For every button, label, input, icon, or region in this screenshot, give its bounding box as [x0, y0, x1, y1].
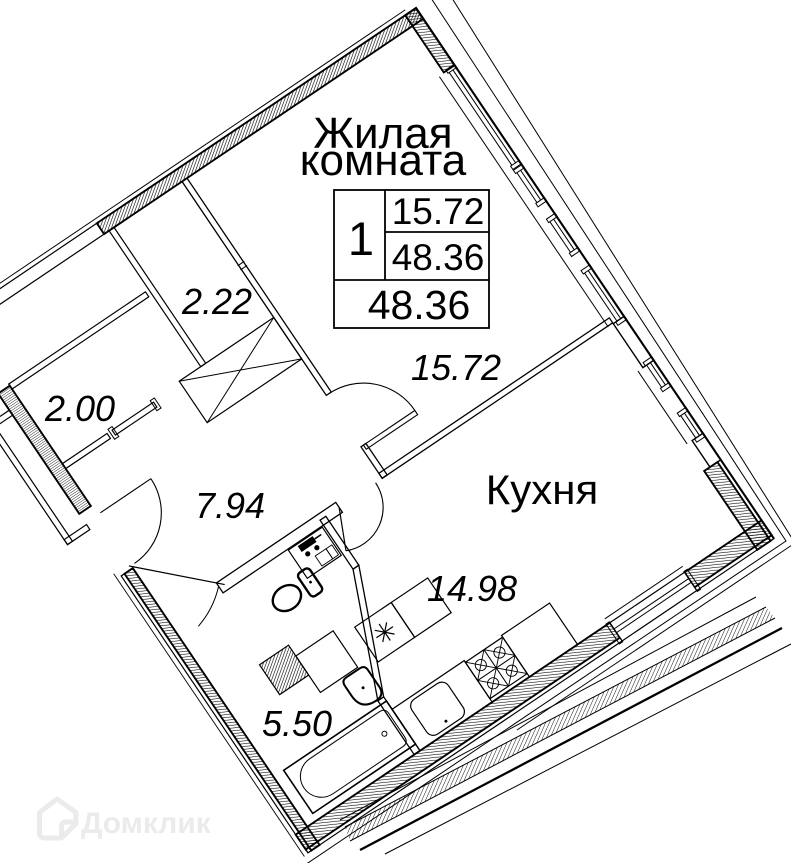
svg-text:2.00: 2.00	[44, 388, 115, 429]
svg-text:2.22: 2.22	[181, 281, 252, 322]
svg-text:15.72: 15.72	[411, 347, 501, 388]
svg-text:Кухня: Кухня	[486, 466, 598, 513]
svg-text:комната: комната	[300, 136, 467, 185]
svg-text:Домклик: Домклик	[81, 807, 212, 840]
svg-text:48.36: 48.36	[368, 282, 471, 328]
svg-text:15.72: 15.72	[392, 191, 485, 232]
svg-text:5.50: 5.50	[262, 703, 332, 744]
svg-text:14.98: 14.98	[427, 568, 517, 609]
svg-text:7.94: 7.94	[195, 485, 265, 526]
svg-text:48.36: 48.36	[392, 237, 485, 278]
svg-text:1: 1	[348, 212, 374, 265]
